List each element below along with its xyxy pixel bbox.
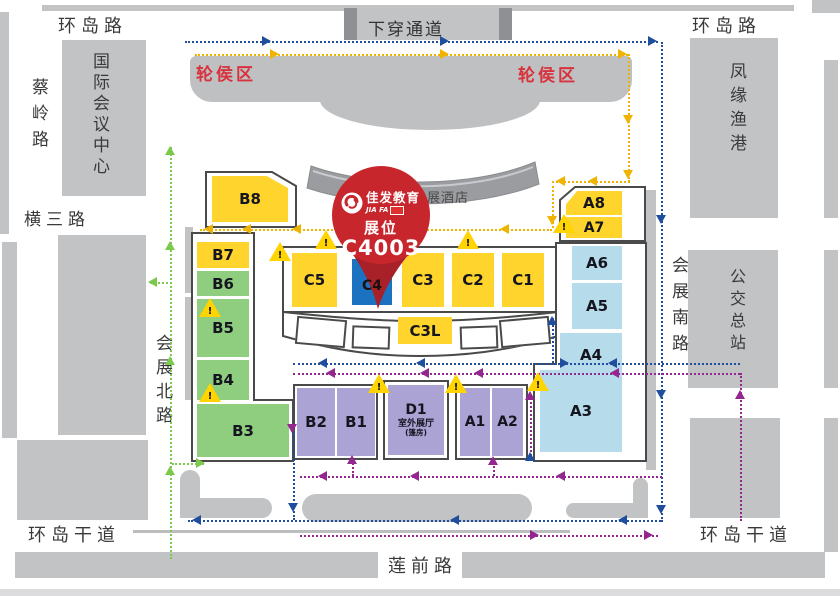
route-arrow-green-u-29 [165,241,175,250]
hall-a3: A3 [540,370,622,452]
arcade-window-4 [499,316,551,348]
route-line-blue-1 [661,42,663,522]
route-arrow-yellow-r-16 [270,49,279,59]
pin-booth-caption: 展位 [333,217,429,238]
hall-d1-subtitle2: (篷房) [405,429,427,438]
route-arrow-yellow-d-19 [623,115,633,124]
route-arrow-purple-l-39 [318,471,327,481]
route-arrow-purple-u-47 [525,391,535,400]
arcade-window-1 [295,316,347,348]
route-arrow-purple-l-40 [410,471,419,481]
hall-a2: A2 [492,388,523,456]
hall-b3: B3 [197,404,289,457]
route-arrow-green-u-28 [165,146,175,155]
route-arrow-purple-l-36 [474,368,483,378]
hall-b6: B6 [197,271,249,296]
route-arrow-purple-r-45 [644,530,653,540]
hall-a5: A5 [572,283,622,329]
route-arrow-blue-l-6 [192,515,201,525]
route-arrow-yellow-l-22 [556,176,565,186]
hall-b7: B7 [197,242,249,268]
route-arrow-blue-r-12 [560,358,569,368]
route-arrow-blue-u-14 [547,316,557,325]
hall-b1: B1 [337,388,375,456]
route-arrow-green-u-30 [165,356,175,365]
route-arrow-blue-l-9 [318,358,327,368]
route-line-purple-20 [530,394,532,460]
hall-d1-code: D1 [405,402,426,418]
route-arrow-purple-l-41 [556,471,565,481]
route-line-purple-19 [300,535,658,537]
route-arrow-yellow-r-18 [618,49,627,59]
route-arrow-blue-r-2 [648,36,657,46]
route-arrow-green-u-31 [165,466,175,475]
hall-b2: B2 [297,388,335,456]
pin-brand-logo: 佳发教育 JIA FA [341,192,420,215]
hall-a6: A6 [572,246,622,280]
route-arrow-yellow-l-26 [292,224,301,234]
route-arrow-purple-u-38 [735,390,745,399]
arcade-window-2 [352,325,391,349]
hall-a1: A1 [460,388,490,456]
hall-d1: D1 室外展厅 (篷房) [388,385,444,455]
pin-booth-number: C4003 [333,236,429,260]
route-arrow-purple-l-34 [326,368,335,378]
arcade-window-3 [460,325,499,349]
hall-c2: C2 [452,253,494,307]
route-line-purple-16 [300,476,662,478]
route-arrow-green-l-32 [148,277,157,287]
pin-brand-badge [390,206,404,215]
route-line-blue-2 [188,520,661,522]
route-arrow-yellow-d-20 [623,170,633,179]
route-arrow-blue-u-15 [525,452,535,461]
route-arrow-yellow-l-25 [242,224,251,234]
route-arrow-purple-l-37 [610,368,619,378]
hall-a7: A7 [566,217,622,238]
hall-a8: A8 [566,191,622,215]
brand-swirl-icon [341,192,363,214]
route-arrow-yellow-l-21 [588,176,597,186]
route-line-blue-0 [185,41,658,43]
route-arrow-blue-d-4 [656,390,666,399]
route-arrow-blue-r-1 [440,36,449,46]
route-arrow-yellow-l-24 [204,224,213,234]
route-arrow-blue-d-3 [656,215,666,224]
pin-brand-latin: JIA FA [366,207,388,214]
route-arrow-blue-l-7 [450,515,459,525]
route-arrow-green-r-33 [196,458,205,468]
route-arrow-blue-r-0 [262,36,271,46]
hall-b8: B8 [212,176,288,222]
route-arrow-yellow-l-27 [500,224,509,234]
route-arrow-blue-l-8 [618,515,627,525]
route-arrow-purple-u-43 [488,456,498,465]
route-arrow-purple-u-42 [347,455,357,464]
route-line-yellow-6 [195,54,628,56]
pin-brand-name: 佳发教育 [366,192,420,205]
route-arrow-purple-d-46 [287,424,297,433]
exhibition-venue-map: 会展酒店 环岛路 下穿通道 环岛路 蔡岭路 国际会议中心 横三路 会展北路 环岛… [0,0,840,596]
route-line-blue-3 [293,363,740,365]
hall-c1: C1 [502,253,544,307]
route-arrow-blue-l-11 [608,358,617,368]
route-arrow-purple-r-44 [530,530,539,540]
route-arrow-yellow-r-17 [440,49,449,59]
route-line-green-11 [170,147,172,559]
route-arrow-blue-d-5 [656,505,666,514]
hall-c3l: C3L [398,317,452,344]
hall-c4-label: C4 [352,278,392,294]
route-arrow-purple-l-35 [420,368,429,378]
route-line-purple-14 [293,373,740,375]
route-arrow-blue-l-10 [416,358,425,368]
route-arrow-yellow-d-23 [547,216,557,225]
route-arrow-blue-d-13 [288,503,298,512]
